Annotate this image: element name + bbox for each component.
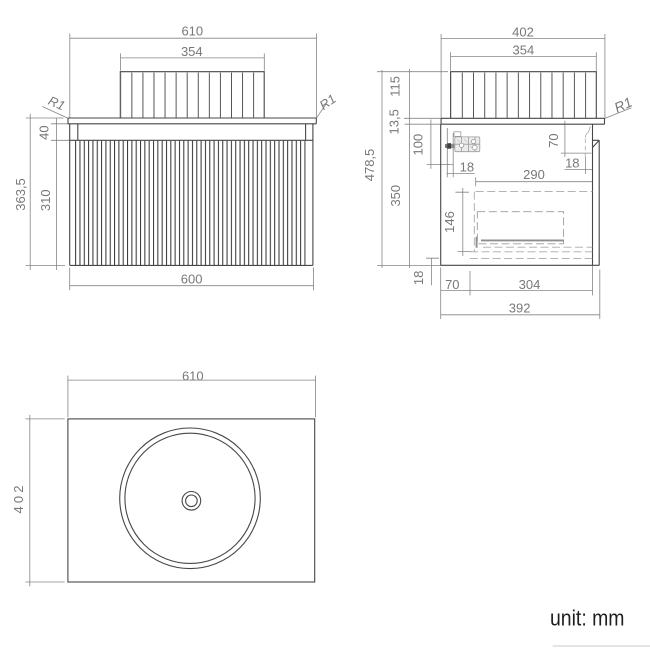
svg-text:18: 18	[411, 271, 426, 285]
svg-text:70: 70	[445, 277, 459, 292]
svg-text:146: 146	[442, 211, 457, 233]
svg-text:115: 115	[388, 76, 403, 97]
svg-text:unit: mm: unit: mm	[550, 606, 625, 631]
svg-text:70: 70	[546, 133, 561, 147]
svg-text:610: 610	[181, 23, 203, 38]
svg-text:478,5: 478,5	[362, 149, 377, 182]
svg-text:18: 18	[460, 159, 474, 174]
svg-text:310: 310	[38, 189, 53, 211]
svg-text:18: 18	[565, 155, 579, 170]
svg-text:350: 350	[388, 185, 403, 207]
svg-text:R1: R1	[46, 93, 67, 113]
svg-text:R1: R1	[317, 91, 339, 113]
svg-text:610: 610	[182, 368, 204, 383]
svg-text:402: 402	[11, 486, 26, 514]
svg-text:600: 600	[181, 271, 203, 286]
svg-text:40: 40	[36, 125, 51, 139]
svg-text:392: 392	[509, 301, 531, 316]
svg-text:304: 304	[519, 277, 541, 292]
svg-text:402: 402	[512, 24, 534, 39]
svg-text:13,5: 13,5	[387, 109, 402, 134]
svg-text:363,5: 363,5	[13, 178, 28, 211]
svg-text:354: 354	[181, 44, 203, 59]
svg-text:R1: R1	[612, 94, 635, 116]
svg-text:100: 100	[411, 134, 426, 156]
svg-text:354: 354	[513, 43, 535, 58]
svg-text:290: 290	[523, 167, 545, 182]
